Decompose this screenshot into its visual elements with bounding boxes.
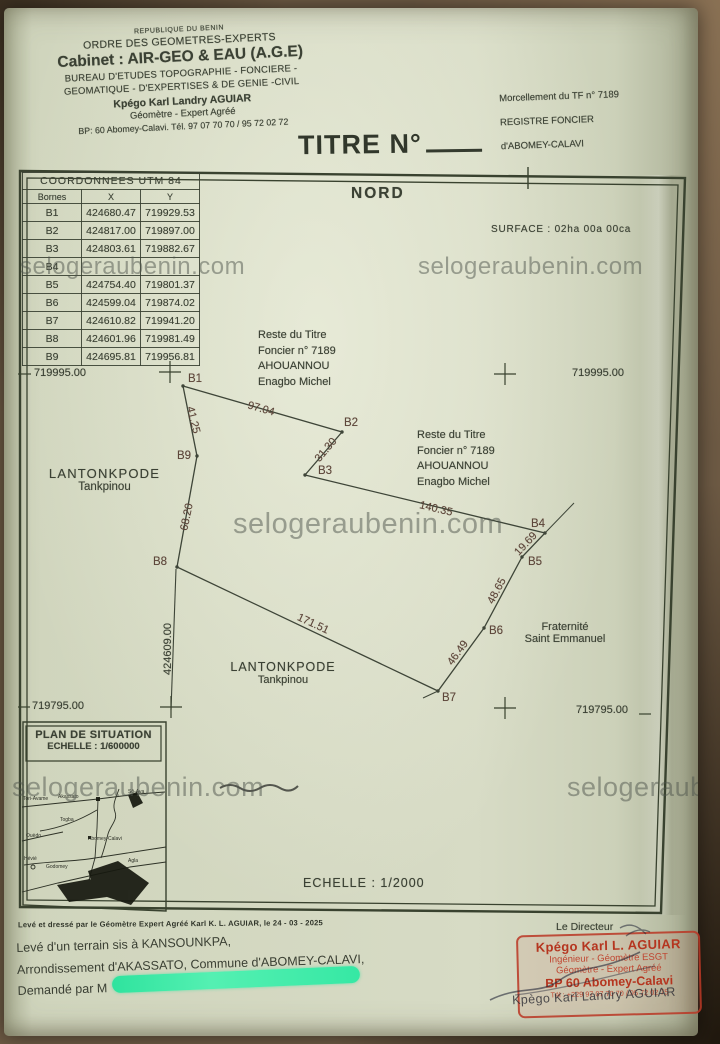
- map-label-tori-avame: Tori-Avame: [23, 796, 48, 802]
- table-row: B7424610.82719941.20: [23, 312, 200, 330]
- map-label-ouedo: Ouèdo: [26, 833, 41, 839]
- vertex-label-b2: B2: [344, 417, 358, 429]
- col-bornes: Bornes: [23, 190, 82, 204]
- boundary-extension-b4: [545, 503, 574, 533]
- grid-label-x-axis: 424609.00: [162, 623, 174, 675]
- situation-title: PLAN DE SITUATION: [26, 729, 161, 741]
- letterhead: REPUBLIQUE DU BENIN ORDRE DES GEOMETRES-…: [12, 19, 350, 139]
- map-label-godomey: Godomey: [46, 864, 68, 870]
- director-label: Le Directeur: [556, 921, 613, 933]
- situation-title-block: PLAN DE SITUATION ECHELLE : 1/600000: [26, 729, 161, 752]
- map-label-akassato: Akassato: [58, 794, 79, 800]
- vertex-label-b8: B8: [153, 556, 167, 568]
- neighbor-label-reste-titre-2: Reste du Titre Foncier n° 7189 AHOUANNOU…: [417, 428, 495, 490]
- north-label: NORD: [351, 185, 405, 203]
- vertex-label-b6: B6: [489, 625, 503, 637]
- illegible-handwriting-smudge: [220, 785, 298, 791]
- table-row: B4: [23, 258, 200, 276]
- table-row: B6424599.04719874.02: [23, 294, 200, 312]
- neighbor-label-fraternite: Fraternité Saint Emmanuel: [510, 621, 620, 645]
- table-row: B5424754.40719801.37: [23, 276, 200, 294]
- registry-reference: Morcellement du TF n° 7189 REGISTRE FONC…: [499, 81, 691, 160]
- col-y: Y: [141, 190, 200, 204]
- table-title: COORDONNEES UTM 84: [23, 173, 200, 190]
- vertex-label-b5: B5: [528, 556, 542, 568]
- table-row: B9424695.81719956.81: [23, 348, 200, 366]
- neighbor-label-lantonkpode-1: LANTONKPODE Tankpinou: [42, 466, 167, 493]
- table-row: B1424680.47719929.53: [23, 204, 200, 222]
- main-scale-label: ECHELLE : 1/2000: [303, 876, 425, 890]
- vertex-label-b9: B9: [177, 450, 191, 462]
- table-row: B3424803.61719882.67: [23, 240, 200, 258]
- vertex-label-b1: B1: [188, 373, 202, 385]
- map-label-agla: Agla: [128, 858, 138, 864]
- grid-label-top-left: 719995.00: [34, 367, 86, 379]
- grid-label-bottom-left: 719795.00: [32, 700, 84, 712]
- vertex-label-b7: B7: [442, 692, 456, 704]
- grid-label-top-right: 719995.00: [572, 367, 624, 379]
- table-row: B2424817.00719897.00: [23, 222, 200, 240]
- table-row: B8424601.96719981.49: [23, 330, 200, 348]
- map-label-abomey-calavi: Abomey-Calavi: [88, 836, 122, 842]
- grid-label-bottom-right: 719795.00: [576, 704, 628, 716]
- neighbor-label-lantonkpode-2: LANTONKPODE Tankpinou: [228, 660, 338, 686]
- title-blank-line: [426, 129, 482, 153]
- neighbor-label-reste-titre-1: Reste du Titre Foncier n° 7189 AHOUANNOU…: [258, 328, 336, 390]
- map-label-hevie: Hévié: [24, 856, 37, 862]
- situation-water: [57, 792, 149, 905]
- vertex-label-b4: B4: [531, 518, 545, 530]
- boundary-extension-b7: [423, 691, 438, 698]
- document-title: TITRE N°: [298, 128, 482, 162]
- vertex-label-b3: B3: [318, 465, 332, 477]
- title-text: TITRE N°: [298, 129, 422, 161]
- footer-description: Levé d'un terrain sis à KANSOUNKPA, Arro…: [16, 927, 365, 1002]
- col-x: X: [82, 190, 141, 204]
- photo-of-document: REPUBLIQUE DU BENIN ORDRE DES GEOMETRES-…: [0, 0, 720, 1044]
- coordinates-table: COORDONNEES UTM 84 Bornes X Y B1424680.4…: [22, 172, 200, 366]
- situation-scale: ECHELLE : 1/600000: [26, 741, 161, 752]
- map-label-so-ava: Sô-Ava: [128, 789, 144, 795]
- surface-label: SURFACE : 02ha 00a 00ca: [491, 224, 631, 235]
- map-label-togba: Togba: [60, 817, 74, 823]
